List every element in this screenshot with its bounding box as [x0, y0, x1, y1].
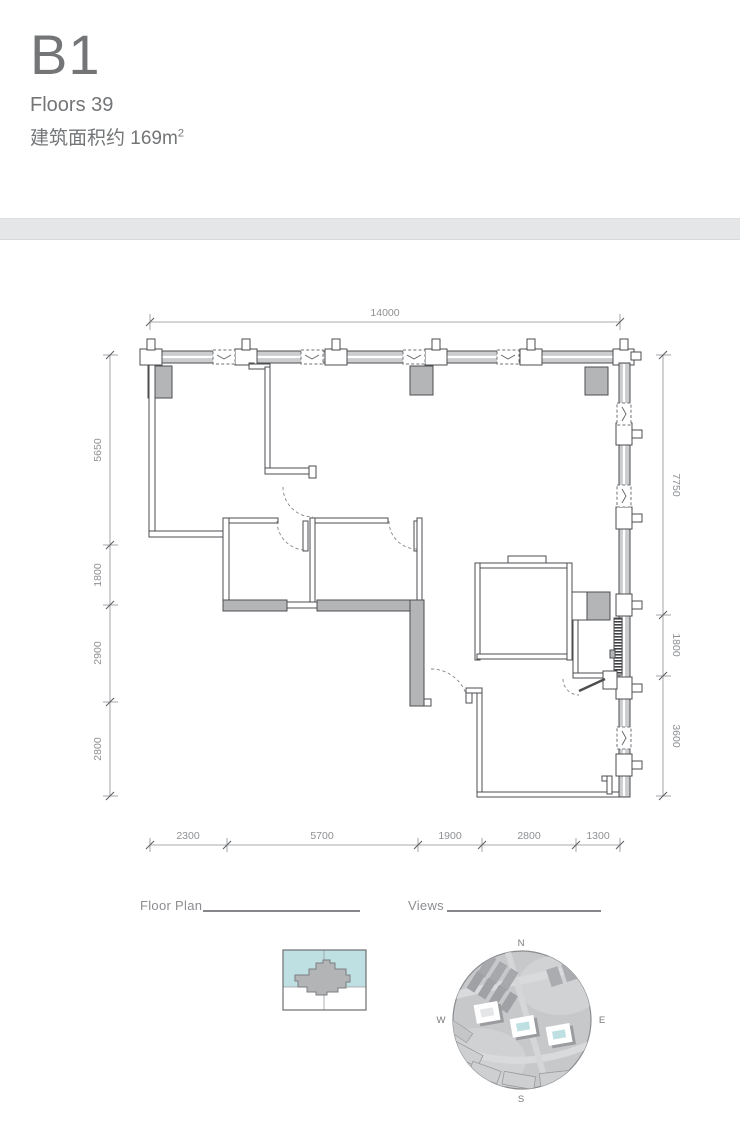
dimension-left: 5650 1800 2900 2800	[92, 351, 118, 800]
wall-opening	[287, 602, 317, 608]
tower-3	[546, 1023, 576, 1049]
dim-label: 5700	[310, 830, 334, 842]
door-swing-arc	[389, 521, 417, 549]
floors-label: Floors 39	[30, 94, 184, 117]
tower-1	[474, 1001, 504, 1027]
thick-walls	[223, 600, 482, 706]
floor-plan-drawing: 14000 2300 5700 1900 2800 1300 5650	[0, 0, 740, 1130]
area-label: 建筑面积约 169m2	[30, 123, 184, 150]
door-leaf	[579, 679, 605, 691]
dimension-top: 14000	[146, 307, 624, 330]
views-label: Views	[408, 898, 444, 913]
door-swing-arc	[283, 487, 313, 517]
dim-label: 2900	[92, 641, 104, 665]
top-window-wall	[140, 339, 641, 398]
door-swing-arc	[431, 669, 468, 706]
dim-label: 14000	[370, 307, 399, 319]
area-text: 建筑面积约 169m	[30, 128, 178, 149]
structural-columns	[148, 366, 608, 398]
dim-label: 2800	[92, 737, 104, 761]
door-swing-arc	[277, 521, 306, 550]
tower-2	[510, 1015, 540, 1041]
door-swing-arc	[563, 679, 579, 695]
dim-label: 1800	[92, 563, 104, 587]
dim-label: 5650	[92, 438, 104, 462]
dim-label: 3600	[670, 724, 682, 748]
area-superscript: 2	[178, 127, 184, 139]
dim-label: 1900	[438, 830, 462, 842]
door-leaf	[303, 521, 308, 551]
dim-label: 2800	[517, 830, 541, 842]
compass-east-label: E	[599, 1015, 605, 1026]
dim-label: 7750	[670, 473, 682, 497]
dimension-bottom: 2300 5700 1900 2800 1300	[146, 830, 624, 852]
compass-west-label: W	[437, 1015, 446, 1026]
dimension-right: 7750 1800 3600	[656, 351, 682, 800]
dim-label: 2300	[176, 830, 200, 842]
floor-plan-label: Floor Plan	[140, 898, 202, 913]
interior-partitions	[229, 363, 422, 603]
shaft-column	[587, 592, 610, 620]
floorplan-page: { "header": { "unit": "B1", "floors": "F…	[0, 0, 740, 1130]
dim-label: 1300	[586, 830, 610, 842]
compass-north-label: N	[518, 938, 525, 949]
upper-right-room	[475, 556, 617, 695]
key-plan	[283, 950, 366, 1010]
right-window-wall	[572, 363, 642, 797]
title-block: B1 Floors 39 建筑面积约 169m2	[30, 24, 184, 150]
left-outer-wall	[149, 365, 229, 602]
unit-title: B1	[30, 24, 184, 86]
hatched-wall	[614, 618, 622, 675]
dim-label: 1800	[670, 633, 682, 657]
views-compass: N W E S	[430, 938, 605, 1105]
lower-right-room	[477, 693, 619, 797]
compass-south-label: S	[518, 1094, 524, 1105]
